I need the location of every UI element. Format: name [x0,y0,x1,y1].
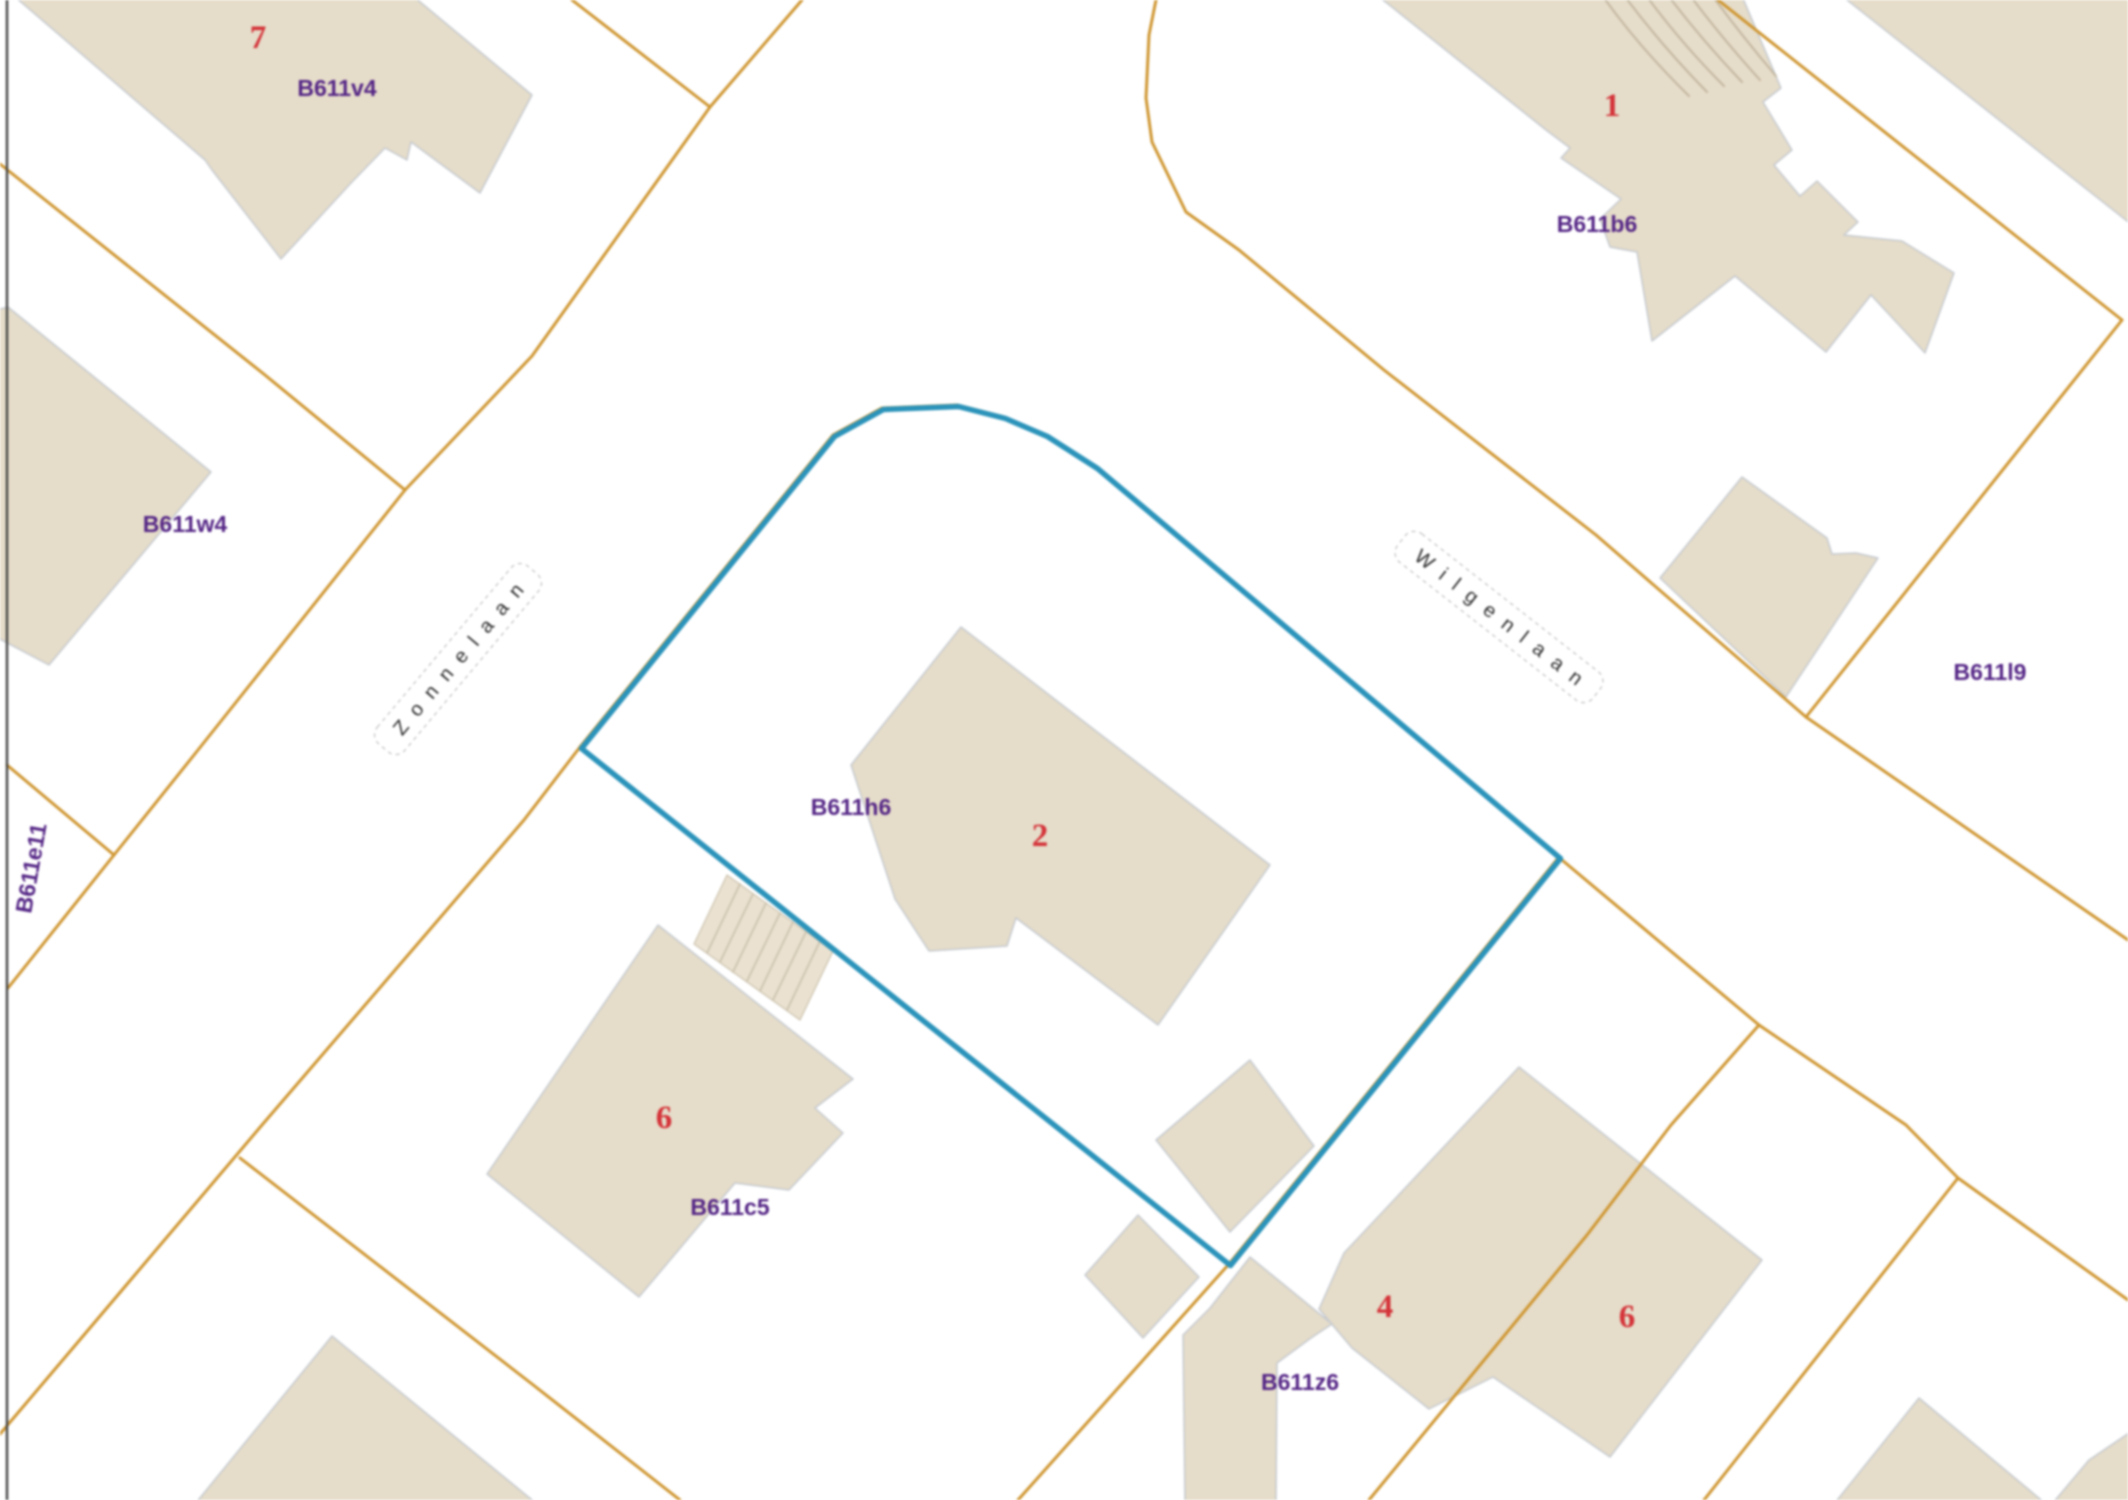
svg-text:1: 1 [1604,88,1621,124]
svg-text:B611w4: B611w4 [143,511,228,537]
svg-text:B611b6: B611b6 [1557,211,1638,237]
svg-text:B611c5: B611c5 [690,1194,770,1220]
svg-text:6: 6 [1619,1299,1636,1335]
svg-text:B611v4: B611v4 [297,75,377,101]
svg-text:B611z6: B611z6 [1261,1369,1339,1395]
svg-text:2: 2 [1032,818,1049,854]
svg-text:B611l9: B611l9 [1954,659,2027,685]
svg-text:B611h6: B611h6 [811,794,892,820]
svg-text:6: 6 [656,1100,673,1136]
svg-text:4: 4 [1377,1289,1394,1325]
svg-text:7: 7 [250,20,267,56]
